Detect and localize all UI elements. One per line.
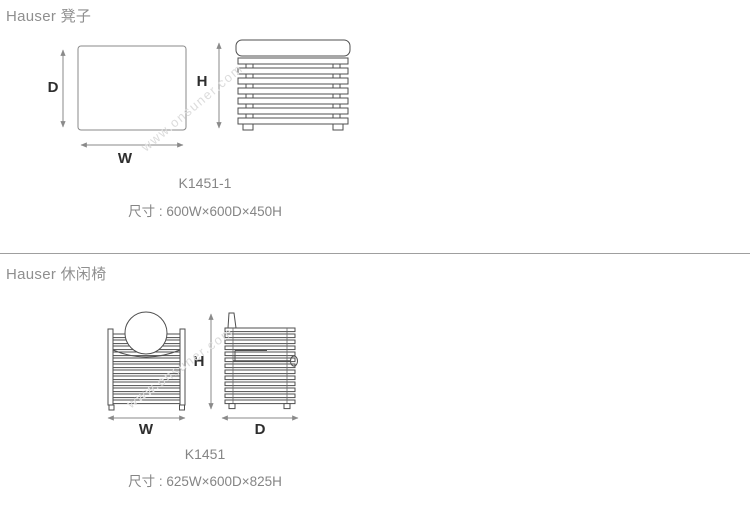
chair-product-code: K1451 [40,446,370,462]
chair-section-heading: Hauser 休闲椅 [6,263,107,284]
depth-label: D [48,79,59,96]
width-label: W [139,421,154,438]
chair-dimension-drawing: W H [95,298,310,440]
width-label: W [118,150,133,167]
stool-product-code: K1451-1 [40,175,370,191]
stool-dimension-drawing: D W H [40,30,370,172]
stool-section-heading: Hauser 凳子 [6,5,91,26]
section-divider [0,253,750,254]
stool-size-text: 尺寸 : 600W×600D×450H [40,200,370,220]
chair-size-text: 尺寸 : 625W×600D×825H [40,470,370,490]
height-label: H [197,73,208,90]
depth-label: D [255,421,266,438]
stool-front-view [236,40,350,130]
spec-sheet-page: Hauser 凳子 D W H [0,0,750,530]
stool-top-view [78,46,186,130]
height-label: H [194,353,205,370]
chair-front-view [108,312,185,410]
chair-side-view [225,313,298,409]
